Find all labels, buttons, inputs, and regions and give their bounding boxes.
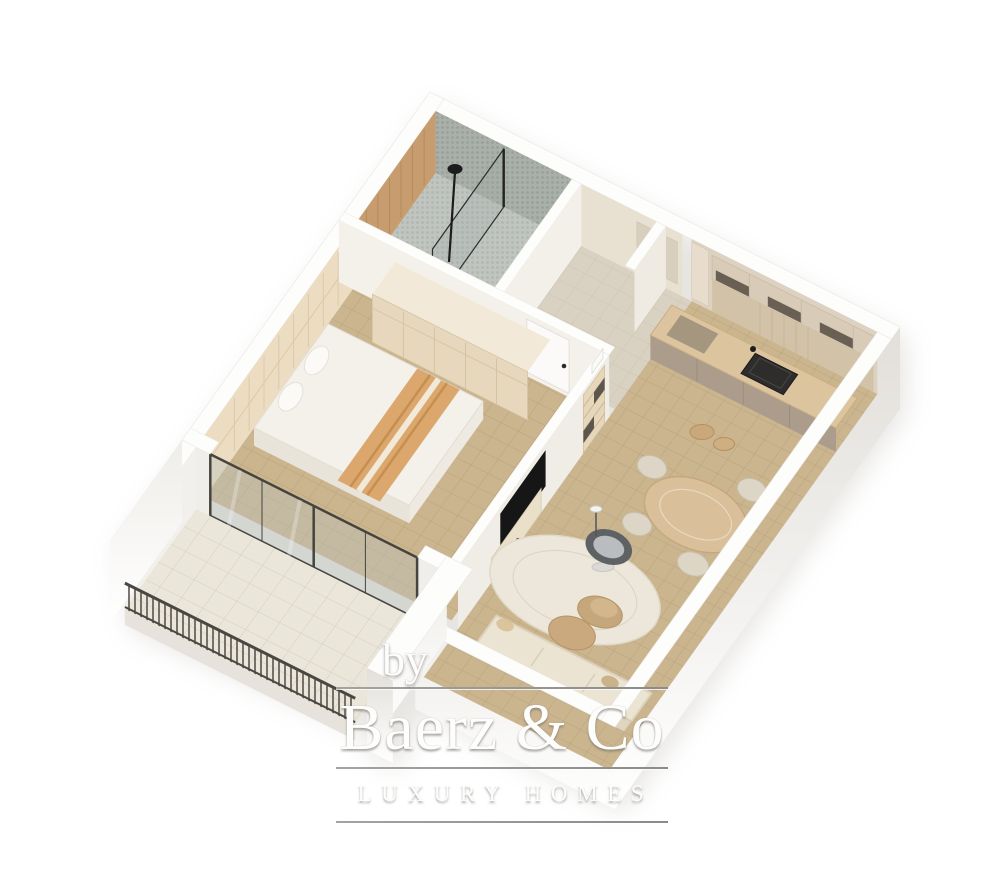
floor-lamp (590, 506, 602, 512)
brand-by: by (336, 636, 668, 684)
kitchen-stool (690, 425, 714, 440)
brand-tagline: LUXURY HOMES (336, 781, 668, 807)
brand-name: Baerz & Co (336, 692, 668, 763)
brand-divider-top (336, 687, 668, 689)
brand-divider-middle (336, 767, 668, 769)
kitchen-tall-unit (692, 242, 709, 306)
door-handle-icon (562, 364, 567, 369)
floorplan-render-page: by Baerz & Co LUXURY HOMES (0, 0, 1000, 890)
sink-faucet-icon (750, 346, 756, 352)
kitchen-stool (714, 438, 735, 451)
brand-watermark: by Baerz & Co LUXURY HOMES (336, 636, 668, 826)
brand-divider-bottom (336, 821, 668, 823)
